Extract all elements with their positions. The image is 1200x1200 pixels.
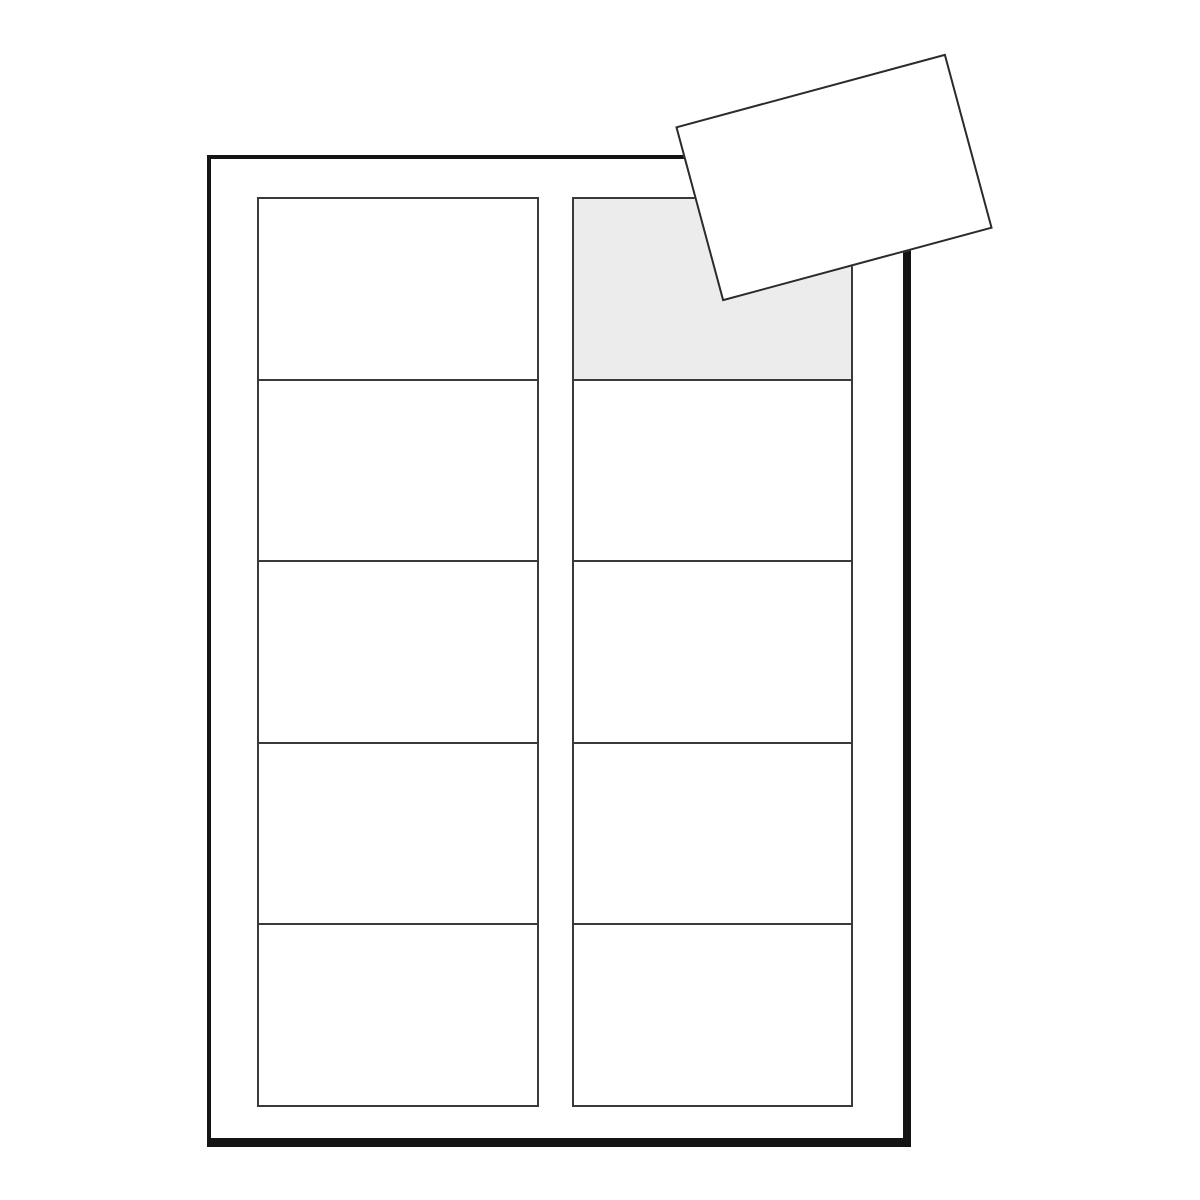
label-column-left [257,197,539,1107]
label-cell [572,742,853,926]
label-cell [257,379,539,563]
page-background [0,0,1200,1200]
detached-business-card [675,54,992,302]
label-column-right [572,197,853,1107]
label-cell [257,742,539,926]
label-cell [257,560,539,744]
label-cell [257,923,539,1107]
label-cell [572,560,853,744]
label-cell [257,197,539,381]
label-sheet [207,155,911,1147]
label-cell [572,923,853,1107]
label-cell [572,379,853,563]
